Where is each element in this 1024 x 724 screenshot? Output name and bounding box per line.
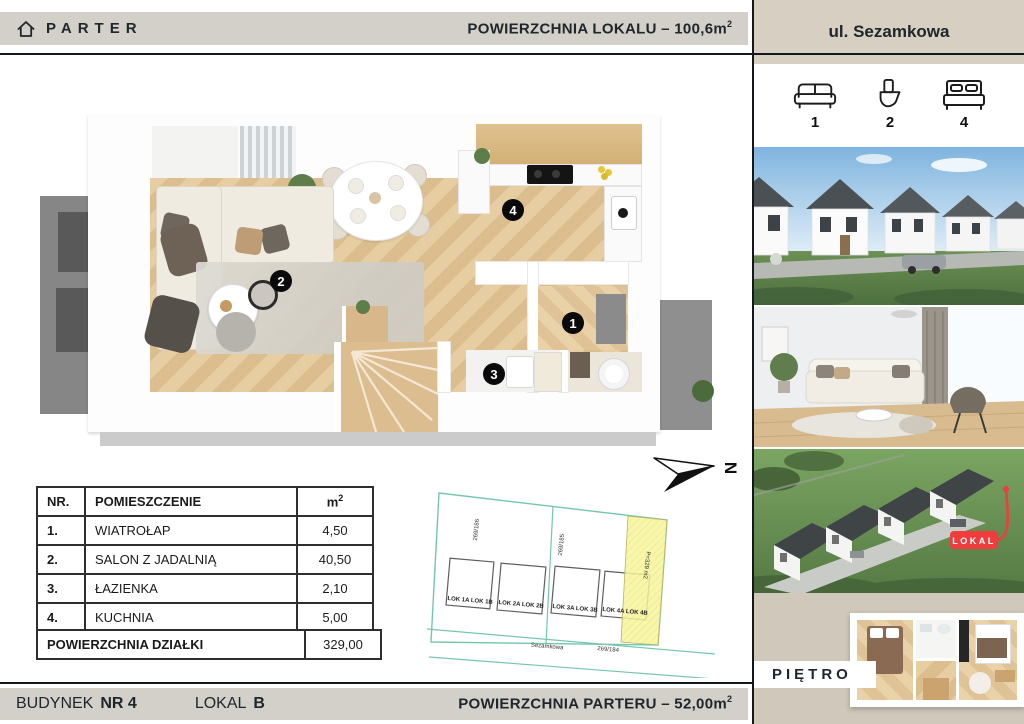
place-setting <box>350 208 366 224</box>
lokal-badge-label: LOKAL <box>952 536 996 546</box>
compass-letter: N <box>721 462 740 474</box>
room-badge-3: 3 <box>483 363 505 385</box>
photo-exterior <box>754 147 1024 305</box>
place-setting <box>388 175 404 191</box>
building-number: BUDYNEK NR 4 <box>16 695 137 713</box>
wc-mat <box>570 352 590 378</box>
lemon <box>598 166 605 173</box>
amenity-toilet: 2 <box>876 78 904 131</box>
col-area: m2 <box>297 487 373 516</box>
striped-runner <box>240 126 296 178</box>
table-row: 2. SALON Z JADALNIĄ 40,50 <box>37 545 373 574</box>
upper-floor-plan <box>857 620 1017 700</box>
washer <box>506 356 534 388</box>
photo-interior <box>754 307 1024 447</box>
pietro-label: PIĘTRO <box>754 661 876 688</box>
kettle <box>618 208 628 218</box>
divider-vertical <box>752 0 754 724</box>
room-badge-1: 1 <box>562 312 584 334</box>
pillow <box>234 226 263 255</box>
terrace-right <box>654 300 712 430</box>
ground-floor-area: POWIERZCHNIA PARTERU – 52,00m2 <box>458 694 732 713</box>
footer-bar: BUDYNEK NR 4 LOKAL B POWIERZCHNIA PARTER… <box>0 688 748 720</box>
upper-floor-thumbnail <box>850 613 1024 707</box>
street-parcel: 269/184 <box>597 646 620 654</box>
amenity-bed: 4 <box>942 78 986 131</box>
burner <box>534 170 542 178</box>
table-row: 4. KUCHNIA 5,00 <box>37 603 373 632</box>
table-row: 1. WIATROŁAP 4,50 <box>37 516 373 545</box>
sofa-icon <box>792 78 838 112</box>
wall <box>476 262 628 284</box>
divider-bottom <box>0 682 752 684</box>
col-nr: NR. <box>37 487 85 516</box>
bed-icon <box>942 78 986 112</box>
table-row: 3. ŁAZIENKA 2,10 <box>37 574 373 603</box>
brochure-page: PARTER POWIERZCHNIA LOKALU – 100,6m2 <box>0 0 1024 724</box>
col-name: POMIESZCZENIE <box>85 487 297 516</box>
kitchen-cabinets <box>476 124 642 166</box>
photo-aerial: LOKAL <box>754 449 1024 593</box>
amenity-sofa: 1 <box>792 78 838 131</box>
stair-plant <box>356 300 370 314</box>
kitchen-plant <box>474 148 490 164</box>
pouf <box>216 312 256 352</box>
site-plan: LOK 1A LOK 1B LOK 2A LOK 2B LOK 3A LOK 3… <box>425 478 717 678</box>
stairs <box>334 342 438 432</box>
amenities-strip: 1 2 4 <box>754 64 1024 145</box>
wall <box>438 342 450 392</box>
place-setting <box>348 178 364 194</box>
room-badge-2: 2 <box>270 270 292 292</box>
bush <box>692 380 714 402</box>
bowl <box>220 300 232 312</box>
toilet-icon <box>876 78 904 112</box>
divider-top <box>0 53 1024 55</box>
centerpiece <box>369 192 381 204</box>
highlighted-plot <box>621 516 667 645</box>
building-shadow <box>100 432 656 446</box>
lemon <box>601 173 608 180</box>
plot-summary-table: POWIERZCHNIA DZIAŁKI 329,00 <box>36 629 382 660</box>
burner <box>552 170 560 178</box>
rooms-table: NR. POMIESZCZENIE m2 1. WIATROŁAP 4,50 2… <box>36 486 374 633</box>
room-badge-4: 4 <box>502 199 524 221</box>
wardrobe <box>152 126 238 178</box>
table-row: POWIERZCHNIA DZIAŁKI 329,00 <box>37 630 381 659</box>
place-setting <box>390 205 406 221</box>
unit-letter: LOKAL B <box>195 695 265 713</box>
toilet <box>598 358 630 390</box>
shower <box>534 352 562 392</box>
door-mat <box>596 294 626 344</box>
